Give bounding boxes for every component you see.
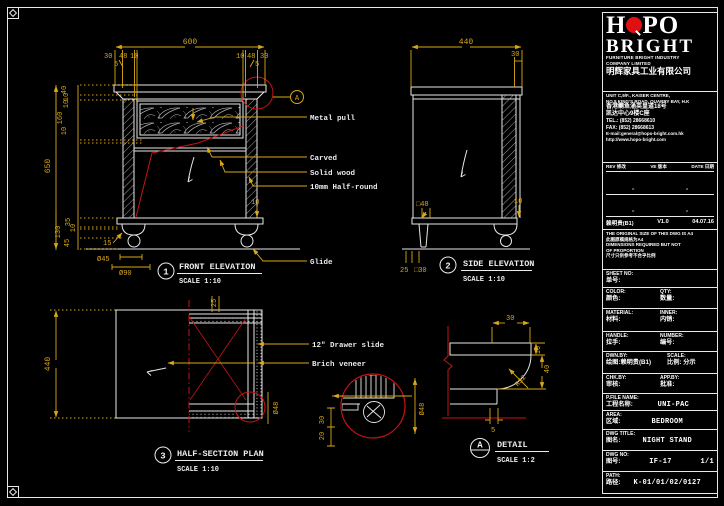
view-number: 3: [160, 452, 165, 462]
logo-red-dot-icon: [626, 17, 642, 33]
dim: 10: [514, 198, 522, 206]
half-section-plan-view: 440 25 Ø48 Ø48 30 20 12" Drawer slide Br…: [44, 296, 427, 474]
label-birch-veneer: Brich veneer: [312, 361, 366, 369]
dim: 160: [57, 112, 65, 125]
dim: 5: [114, 61, 118, 69]
dim: 10: [236, 53, 244, 61]
view-number: 2: [445, 262, 450, 272]
dim: 25: [211, 299, 219, 307]
dim: 48: [247, 53, 255, 61]
dim: □30: [414, 267, 427, 275]
dim: 45: [64, 239, 72, 247]
view-number: A: [477, 441, 483, 451]
field-color-qty: COLOR:颜色: QTY:数量:: [603, 288, 717, 309]
field-sheet-no: SHEET NO: 单号:: [603, 270, 717, 288]
dim: 10: [535, 346, 543, 354]
rev-col-header: DATE 日期: [691, 164, 714, 170]
view-scale: SCALE 1:2: [497, 457, 535, 465]
rev-filled-row: 赖明贵(B1) V1.0 04.07.16: [606, 217, 714, 228]
project-name-value: UNI-PAC: [658, 401, 690, 409]
company-name-cn: 明辉家具工业有限公司: [606, 66, 714, 76]
rev-col-header: REV 修改: [606, 164, 626, 170]
dim: 10: [63, 100, 71, 108]
field-handle-number: HANDLE:拉手: NUMBER:编号:: [603, 332, 717, 352]
dim: 440: [44, 357, 53, 372]
dim: 10: [130, 53, 138, 61]
logo-section: HPO BRIGHT FURNITURE BRIGHT INDUSTRY COM…: [603, 13, 717, 92]
corner-diamond-icon: [10, 10, 17, 17]
detail-a-mark: A: [295, 95, 300, 103]
dim: 30: [104, 53, 112, 61]
field-dwn-scale: DWN.BY: 绘图:赖明贵(B1) SCALE: 比例: 分示: [603, 352, 717, 374]
label-metal-pull: Metal pull: [310, 115, 356, 123]
field-project-name: P.FILE NAME: 工程名称:UNI-PAC: [603, 394, 717, 411]
dim: Ø90: [119, 269, 132, 278]
detail-view: 30 10 40 R32 5 A DETAIL SCALE 1:2: [442, 315, 552, 465]
field-dwg-title: DWG TITLE: 图名:NIGHT STAND: [603, 430, 717, 451]
field-path: PATH: 路径:K-01/01/02/0127: [603, 472, 717, 491]
dim: 25: [400, 267, 408, 275]
dim: □48: [416, 201, 429, 209]
notes-section: THE ORIGINAL SIZE OF THIS DWG IS A4 此图原稿…: [603, 230, 717, 270]
dwg-pages-value: 1/1: [700, 458, 714, 466]
dim: 30: [319, 416, 327, 424]
corner-diamond-icon: [10, 489, 17, 496]
view-scale: SCALE 1:10: [179, 278, 221, 286]
dim: 5: [491, 427, 495, 435]
dwg-title-value: NIGHT STAND: [642, 437, 692, 445]
logo-bright: BRIGHT: [606, 38, 714, 55]
dim: 5: [255, 61, 259, 69]
label-solid-wood: Solid wood: [310, 170, 355, 178]
drawn-by-value: 赖明贵(B1): [620, 359, 651, 366]
title-block: HPO BRIGHT FURNITURE BRIGHT INDUSTRY COM…: [602, 12, 718, 494]
dwg-no-value: IF-17: [649, 458, 672, 466]
dim: 40: [544, 365, 552, 373]
dim: 30: [260, 53, 268, 61]
dim: Ø45: [97, 255, 110, 264]
dim: 650: [44, 159, 53, 174]
dim: Ø48: [418, 403, 427, 416]
rev-col-header: VE 版本: [650, 164, 667, 170]
label-half-round: 10mm Half-round: [310, 184, 378, 192]
dim: Ø48: [272, 402, 281, 415]
field-dwg-no: DWG NO: 图号: IF-17 1/1: [603, 451, 717, 472]
dim: 10: [251, 199, 259, 207]
view-title: SIDE ELEVATION: [463, 259, 534, 269]
front-elevation-view: A 600 30 48 10 10 48 30 5 5 40 10 10: [44, 38, 378, 286]
hopo-logo: HPO: [606, 14, 714, 38]
view-scale: SCALE 1:10: [463, 276, 505, 284]
field-material-inner: MATERIAL:材料: INNER:内销:: [603, 309, 717, 332]
front-dim-lines: [56, 47, 265, 270]
dim: 15: [103, 240, 111, 248]
dim: 440: [459, 38, 474, 47]
field-chk-app: CHK.BY:审核: APP.BY:批准:: [603, 374, 717, 394]
view-scale: SCALE 1:10: [177, 466, 219, 474]
rev-empty-row: ^^: [606, 172, 714, 195]
view-title: HALF-SECTION PLAN: [177, 449, 264, 459]
area-value: BEDROOM: [651, 418, 683, 426]
rev-empty-row: ^^: [606, 195, 714, 218]
website: http://www.hopo-bright.com: [606, 137, 714, 143]
dim: 600: [183, 38, 198, 47]
cad-drawing-sheet: A 600 30 48 10 10 48 30 5 5 40 10 10: [0, 0, 724, 506]
field-area: AREA: 区域:BEDROOM: [603, 411, 717, 430]
note-line: 尺寸只供参考不合乎比例: [606, 253, 714, 259]
dim: 30: [506, 315, 514, 323]
revision-table: REV 修改 VE 版本 DATE 日期 ^^ ^^ 赖明贵(B1) V1.0 …: [603, 163, 717, 230]
view-title: DETAIL: [497, 440, 528, 450]
view-title: FRONT ELEVATION: [179, 262, 256, 272]
path-value: K-01/01/02/0127: [633, 479, 701, 487]
label-carved: Carved: [310, 155, 337, 163]
dim: 30: [511, 51, 519, 59]
address-line-cn: 凯达中心9楼C座: [606, 111, 714, 118]
dim: 130: [55, 226, 63, 239]
scale-value: 分示: [683, 359, 695, 366]
address-section: UNIT C,9/F., KAISER CENTRE, NO.8 KING'S …: [603, 92, 717, 163]
label-drawer-slide: 12" Drawer slide: [312, 342, 385, 350]
label-glide: Glide: [310, 259, 333, 267]
dim: 10: [70, 224, 78, 232]
dim: 10: [61, 127, 69, 135]
dim: 20: [319, 432, 327, 440]
dim: 48: [119, 53, 127, 61]
side-elevation-view: 440 30 □48 10 25 □30 2 SIDE ELEVATION SC…: [400, 38, 534, 284]
view-number: 1: [163, 268, 169, 278]
address-line-cn: 香港鲗鱼涌英皇道18号: [606, 104, 714, 111]
